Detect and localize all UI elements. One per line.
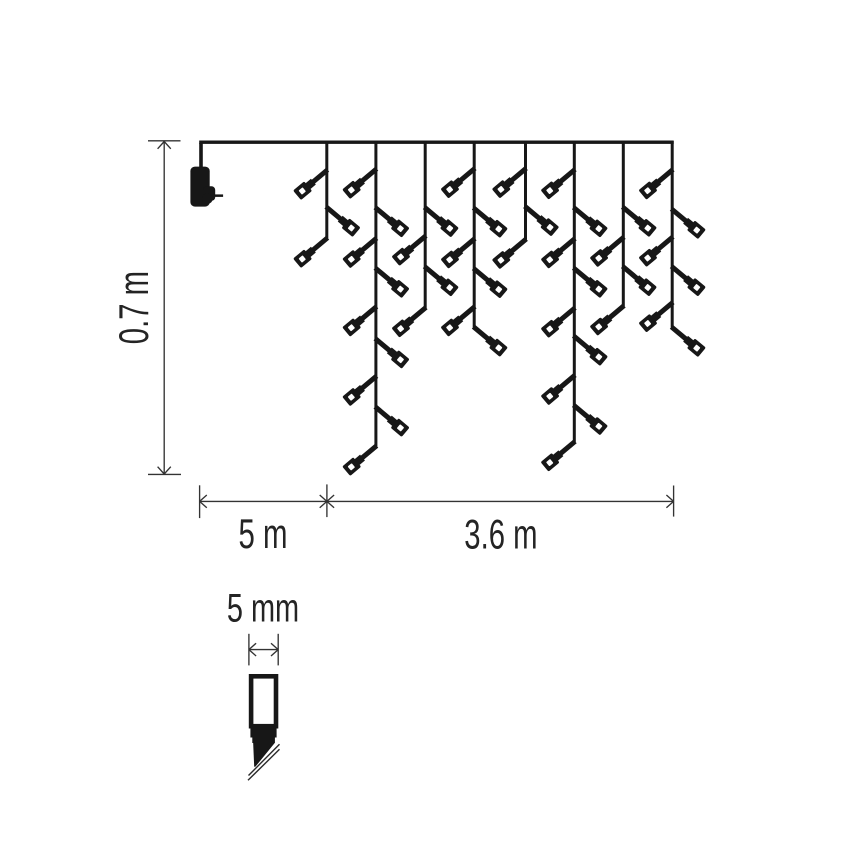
svg-text:3.6 m: 3.6 m: [464, 510, 537, 557]
svg-text:0.7 m: 0.7 m: [110, 271, 157, 344]
svg-text:5 mm: 5 mm: [227, 587, 299, 631]
svg-text:5 m: 5 m: [239, 510, 288, 557]
